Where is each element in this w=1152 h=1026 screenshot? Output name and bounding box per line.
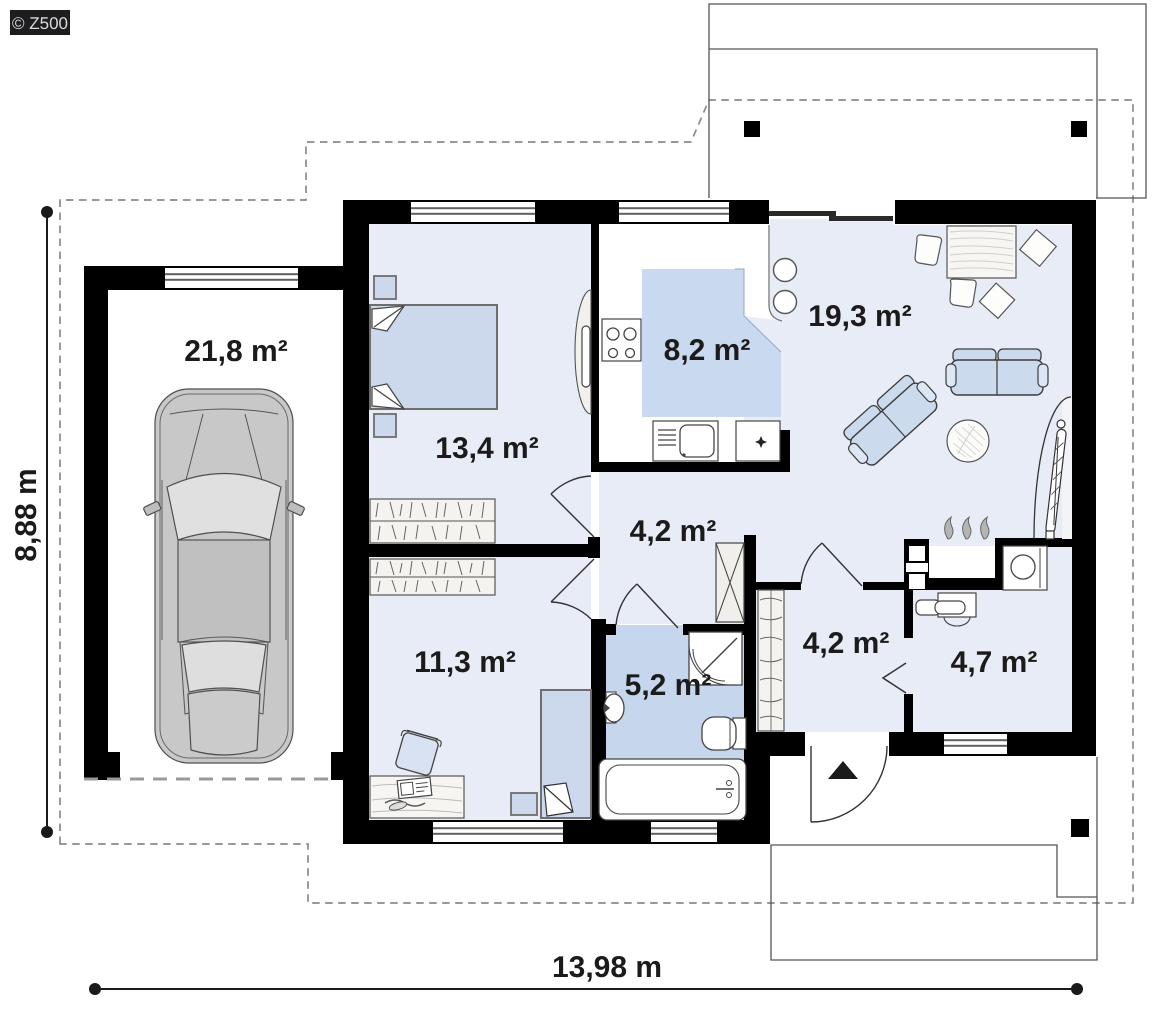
svg-text:© Z500: © Z500	[12, 14, 68, 33]
svg-text:13,98 m: 13,98 m	[552, 951, 662, 984]
svg-text:11,3 m²: 11,3 m²	[414, 646, 516, 679]
svg-text:4,2 m²: 4,2 m²	[630, 515, 717, 548]
svg-text:4,7 m²: 4,7 m²	[951, 646, 1038, 679]
svg-text:19,3 m²: 19,3 m²	[808, 300, 911, 333]
svg-text:21,8 m²: 21,8 m²	[184, 335, 287, 368]
svg-text:5,2 m²: 5,2 m²	[625, 669, 712, 702]
svg-text:8,2 m²: 8,2 m²	[664, 334, 751, 367]
svg-text:13,4 m²: 13,4 m²	[435, 432, 538, 465]
svg-text:4,2 m²: 4,2 m²	[803, 627, 890, 660]
svg-text:8,88 m: 8,88 m	[10, 468, 43, 561]
